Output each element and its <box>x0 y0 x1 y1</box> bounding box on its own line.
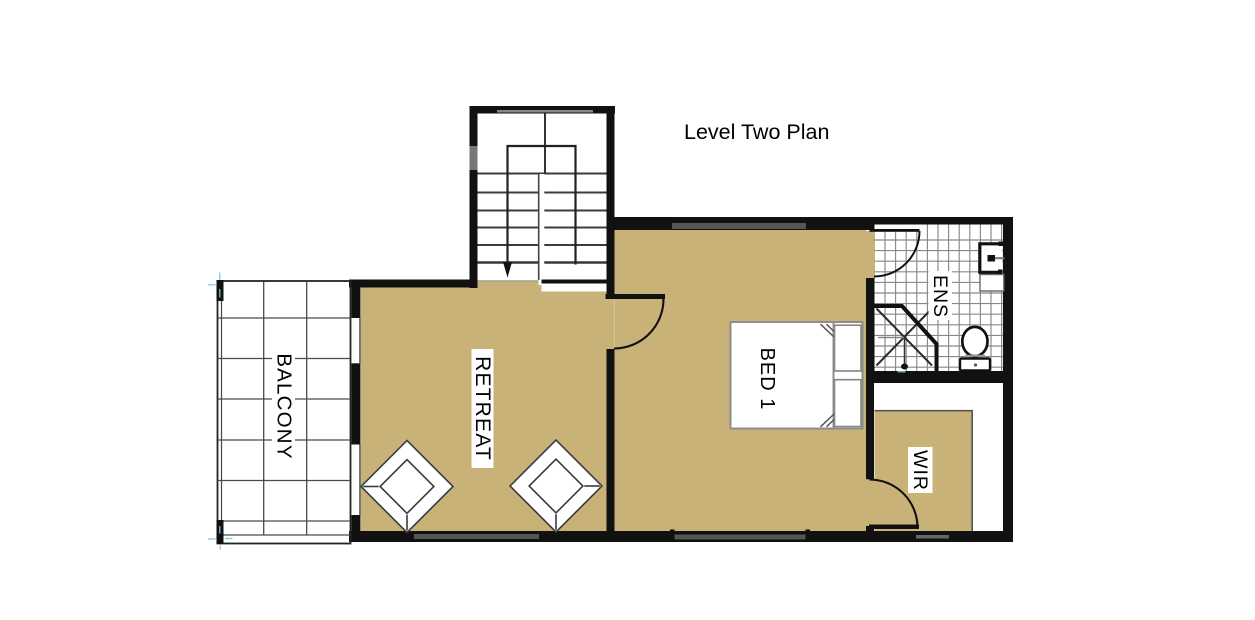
svg-text:BED 1: BED 1 <box>756 348 778 411</box>
svg-text:Level Two Plan: Level Two Plan <box>684 120 829 144</box>
svg-text:BALCONY: BALCONY <box>273 353 296 459</box>
svg-text:WIR: WIR <box>909 450 931 491</box>
svg-text:RETREAT: RETREAT <box>471 356 494 461</box>
svg-text:ENS: ENS <box>929 275 951 318</box>
